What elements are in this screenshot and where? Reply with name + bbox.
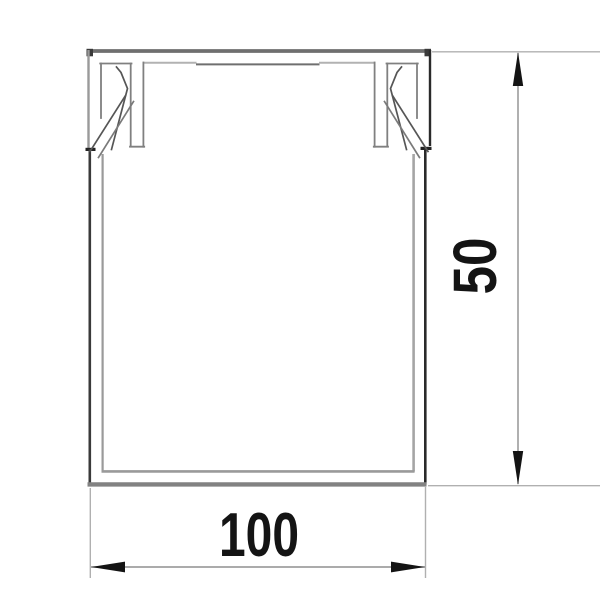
profile-outline (86, 49, 432, 485)
arrowhead-up-icon (513, 52, 523, 86)
technical-drawing-canvas: 50 100 (0, 0, 600, 600)
arrowhead-right-icon (391, 562, 425, 573)
height-dimension: 50 (428, 52, 600, 486)
clip-barb-line (391, 67, 407, 150)
width-dimension: 100 (90, 487, 425, 578)
clip-barb-line (112, 67, 128, 150)
arrowhead-left-icon (91, 562, 125, 573)
height-dimension-label: 50 (441, 238, 509, 295)
trunking-cross-section-drawing: 50 100 (0, 0, 600, 600)
arrowhead-down-icon (513, 451, 523, 485)
clip-detail-left (90, 63, 144, 158)
width-dimension-label: 100 (219, 501, 299, 570)
clip-detail-right (374, 63, 428, 158)
